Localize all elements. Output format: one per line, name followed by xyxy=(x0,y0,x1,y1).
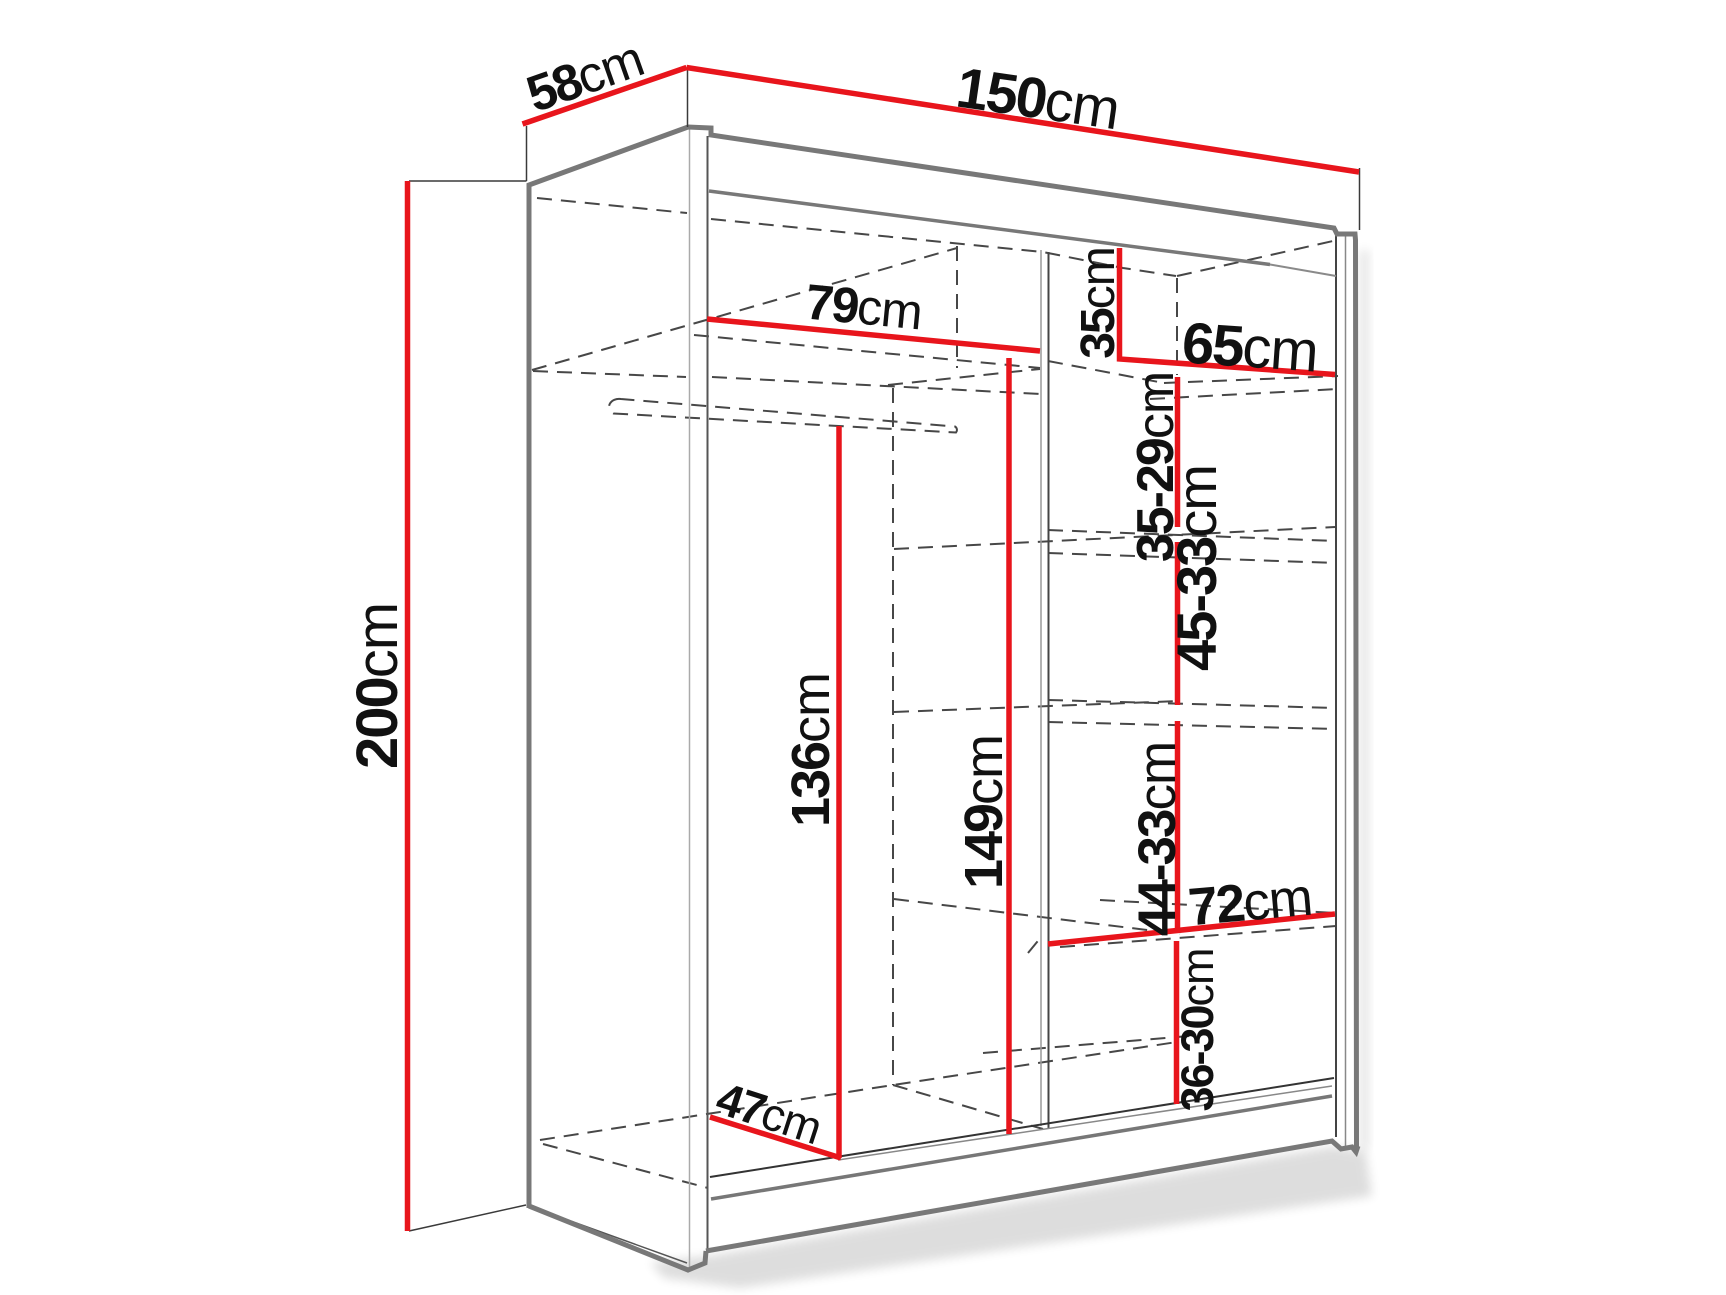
svg-text:136cm: 136cm xyxy=(781,673,841,827)
svg-text:36-30cm: 36-30cm xyxy=(1172,948,1223,1111)
svg-text:149cm: 149cm xyxy=(954,735,1014,889)
svg-text:79cm: 79cm xyxy=(803,274,924,341)
svg-text:200cm: 200cm xyxy=(345,603,410,769)
svg-text:45-33cm: 45-33cm xyxy=(1165,465,1228,671)
svg-text:35cm: 35cm xyxy=(1072,247,1125,358)
svg-text:65cm: 65cm xyxy=(1180,310,1320,384)
svg-text:72cm: 72cm xyxy=(1186,868,1314,938)
svg-text:44-33cm: 44-33cm xyxy=(1128,742,1187,936)
